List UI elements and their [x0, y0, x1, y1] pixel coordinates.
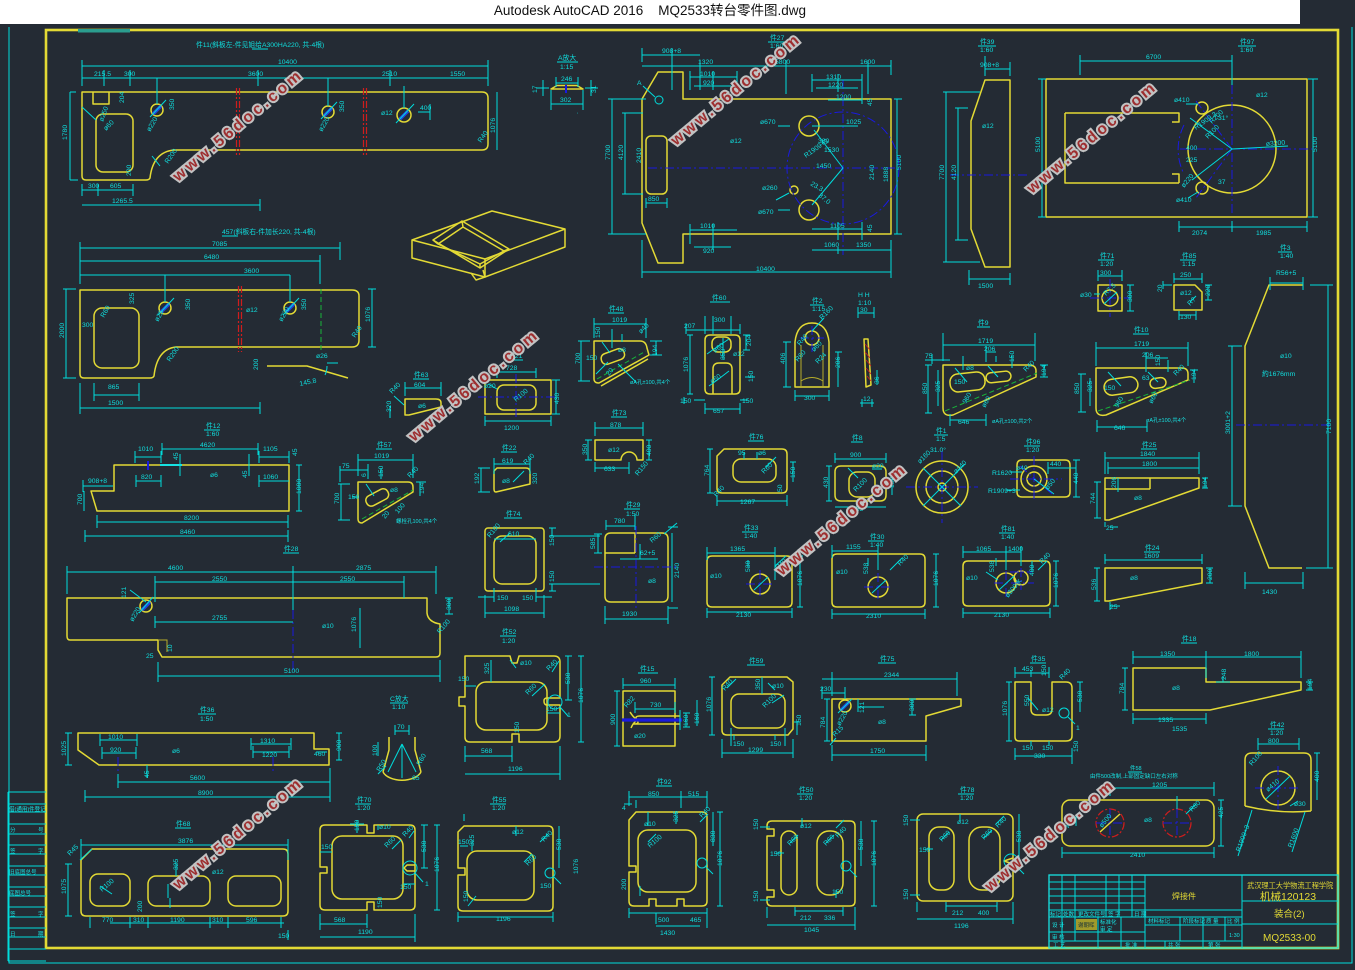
- svg-text:150: 150: [378, 465, 385, 477]
- svg-text:900: 900: [610, 713, 617, 725]
- svg-text:20: 20: [381, 510, 391, 520]
- svg-text:160: 160: [694, 712, 701, 724]
- svg-text:150: 150: [748, 370, 755, 382]
- svg-text:400: 400: [420, 105, 432, 112]
- svg-text:件42: 件42: [1270, 720, 1285, 729]
- svg-text:585: 585: [590, 537, 597, 549]
- svg-text:95: 95: [738, 450, 746, 457]
- svg-text:件33: 件33: [744, 523, 759, 532]
- svg-text:150: 150: [540, 883, 552, 890]
- svg-text:5100: 5100: [284, 668, 299, 675]
- svg-text:300: 300: [1127, 290, 1134, 302]
- svg-text:件8: 件8: [852, 433, 863, 442]
- svg-text:件71: 件71: [1100, 251, 1115, 260]
- svg-text:1:30: 1:30: [1229, 933, 1240, 939]
- svg-text:件75: 件75: [880, 654, 895, 663]
- svg-text:2140: 2140: [674, 563, 681, 578]
- svg-text:日 期: 日 期: [1134, 911, 1147, 918]
- svg-text:45: 45: [144, 770, 151, 778]
- svg-text:75: 75: [925, 353, 933, 360]
- svg-text:45: 45: [867, 224, 874, 232]
- svg-text:646: 646: [1114, 425, 1126, 432]
- svg-text:400: 400: [1186, 145, 1198, 152]
- svg-text:406: 406: [780, 352, 787, 364]
- svg-text:130: 130: [1180, 314, 1192, 321]
- svg-text:ø10: ø10: [644, 821, 656, 828]
- svg-text:R60: R60: [760, 461, 774, 475]
- svg-text:460: 460: [314, 751, 326, 758]
- svg-text:430: 430: [554, 392, 561, 404]
- svg-text:1196: 1196: [954, 923, 969, 930]
- svg-text:150: 150: [753, 818, 760, 830]
- svg-text:850: 850: [1074, 382, 1081, 394]
- svg-text:件29: 件29: [626, 500, 641, 509]
- svg-text:件12: 件12: [206, 421, 221, 430]
- svg-text:206: 206: [1111, 476, 1118, 488]
- svg-text:ø12: ø12: [800, 823, 812, 830]
- svg-text:R?: R?: [1186, 296, 1197, 307]
- svg-text:610: 610: [508, 531, 520, 538]
- svg-text:6: 6: [361, 473, 368, 477]
- svg-text:194: 194: [1041, 364, 1048, 376]
- svg-text:150: 150: [790, 466, 797, 478]
- svg-text:1888: 1888: [883, 167, 890, 182]
- svg-text:谢朝晖: 谢朝晖: [1078, 921, 1095, 929]
- svg-text:1200: 1200: [504, 425, 519, 432]
- svg-text:604: 604: [414, 382, 426, 389]
- svg-text:ø220: ø220: [1180, 173, 1195, 190]
- svg-text:230: 230: [820, 686, 832, 693]
- svg-text:1500: 1500: [978, 283, 993, 290]
- svg-text:R40: R40: [388, 381, 402, 395]
- svg-text:ø12: ø12: [957, 819, 969, 826]
- svg-text:65: 65: [412, 775, 420, 782]
- svg-text:192: 192: [474, 472, 481, 484]
- svg-text:件11(斜板左-件见姐给A300HA220, 共-4根): 件11(斜板左-件见姐给A300HA220, 共-4根): [196, 40, 324, 49]
- svg-text:2130: 2130: [736, 612, 751, 619]
- svg-text:武汉理工大学物流工程学院: 武汉理工大学物流工程学院: [1247, 881, 1333, 890]
- svg-text:件78: 件78: [960, 785, 975, 794]
- svg-text:件10: 件10: [1134, 325, 1149, 334]
- svg-text:www.56doc.com: www.56doc.com: [981, 776, 1119, 896]
- svg-text:150: 150: [1104, 385, 1116, 392]
- svg-text:300: 300: [124, 71, 136, 78]
- svg-text:212: 212: [800, 915, 812, 922]
- svg-text:150: 150: [919, 847, 931, 854]
- svg-text:字: 字: [38, 910, 44, 918]
- svg-text:1265.5: 1265.5: [112, 198, 133, 205]
- svg-text:A: A: [637, 80, 642, 87]
- svg-text:øA孔±100,共4个: øA孔±100,共4个: [1146, 416, 1187, 424]
- svg-text:件1: 件1: [936, 426, 947, 435]
- svg-text:C放大: C放大: [390, 694, 409, 703]
- svg-text:700: 700: [77, 493, 84, 505]
- svg-text:1196: 1196: [496, 916, 511, 923]
- svg-text:7700: 7700: [605, 145, 612, 160]
- svg-text:1985: 1985: [1256, 230, 1271, 237]
- svg-text:1609: 1609: [1144, 553, 1159, 560]
- svg-text:300: 300: [446, 598, 453, 610]
- svg-text:325: 325: [673, 810, 680, 822]
- svg-text:MQ2533-00: MQ2533-00: [1263, 933, 1316, 944]
- svg-text:螺栓孔100,共4个: 螺栓孔100,共4个: [396, 517, 438, 525]
- svg-text:ø6: ø6: [172, 748, 180, 755]
- svg-text:538: 538: [858, 838, 865, 850]
- svg-text:17: 17: [532, 85, 539, 93]
- svg-text:ø26: ø26: [316, 353, 328, 360]
- svg-text:件52: 件52: [502, 627, 517, 636]
- svg-text:4120: 4120: [618, 145, 625, 160]
- svg-text:200: 200: [253, 358, 260, 370]
- svg-text:1:15: 1:15: [1182, 261, 1195, 268]
- svg-text:310: 310: [133, 917, 145, 924]
- svg-text:204: 204: [119, 91, 126, 103]
- svg-text:784: 784: [1119, 682, 1126, 694]
- svg-text:共 张: 共 张: [1168, 941, 1181, 949]
- svg-text:1719: 1719: [1134, 341, 1149, 348]
- svg-text:ø220: ø220: [836, 710, 850, 727]
- svg-text:6700: 6700: [1146, 54, 1161, 61]
- svg-text:325: 325: [173, 858, 180, 870]
- svg-text:1045: 1045: [804, 927, 819, 934]
- svg-text:25: 25: [1110, 604, 1118, 611]
- svg-text:R60: R60: [416, 753, 428, 767]
- svg-text:设 计: 设 计: [1052, 921, 1065, 929]
- svg-text:ø8: ø8: [648, 578, 656, 585]
- svg-text:1: 1: [567, 712, 571, 719]
- svg-text:ø10: ø10: [322, 623, 334, 630]
- svg-text:R1909+3: R1909+3: [1235, 824, 1251, 853]
- svg-text:R150: R150: [634, 460, 650, 477]
- svg-text:øA孔±100,共2个: øA孔±100,共2个: [992, 417, 1033, 425]
- svg-text:焊接件: 焊接件: [1172, 891, 1196, 901]
- svg-text:工 艺: 工 艺: [1053, 942, 1066, 949]
- svg-text:30: 30: [860, 307, 868, 314]
- svg-text:310: 310: [212, 917, 224, 924]
- svg-text:605: 605: [110, 183, 122, 190]
- svg-text:ø30: ø30: [1080, 292, 1092, 299]
- svg-text:ø12: ø12: [608, 447, 620, 454]
- svg-text:件2: 件2: [812, 296, 823, 305]
- svg-text:8200: 8200: [184, 515, 199, 522]
- svg-text:ø12: ø12: [212, 869, 224, 876]
- svg-text:1200: 1200: [836, 94, 851, 101]
- svg-text:1: 1: [1076, 725, 1080, 732]
- svg-text:R1909+3: R1909+3: [988, 488, 1016, 495]
- svg-text:150: 150: [549, 570, 556, 582]
- svg-text:3001+2: 3001+2: [1225, 411, 1232, 434]
- svg-text:件3: 件3: [1280, 243, 1291, 252]
- svg-text:150: 150: [753, 890, 760, 902]
- svg-text:件57: 件57: [377, 440, 392, 449]
- svg-text:R56+5: R56+5: [1276, 270, 1296, 277]
- svg-text:1:40: 1:40: [744, 533, 757, 540]
- svg-text:件70: 件70: [357, 795, 372, 804]
- svg-text:R45: R45: [66, 843, 80, 857]
- svg-text:件30: 件30: [870, 532, 885, 541]
- svg-text:R200: R200: [166, 346, 181, 364]
- svg-text:1:20: 1:20: [1270, 730, 1283, 737]
- svg-text:865: 865: [108, 384, 120, 391]
- svg-text:568: 568: [481, 748, 493, 755]
- svg-text:件59: 件59: [749, 656, 764, 665]
- svg-text:1076: 1076: [573, 859, 580, 874]
- svg-text:325: 325: [469, 834, 476, 846]
- svg-text:ø10: ø10: [520, 660, 532, 667]
- svg-text:3600: 3600: [248, 71, 263, 78]
- svg-text:ø410: ø410: [1265, 778, 1282, 793]
- svg-text:处数: 处数: [1063, 910, 1075, 918]
- svg-text:件73: 件73: [612, 408, 627, 417]
- svg-text:1075: 1075: [61, 879, 68, 894]
- svg-text:R80: R80: [1188, 799, 1202, 813]
- svg-text:440: 440: [1073, 472, 1080, 484]
- svg-text:150: 150: [497, 595, 509, 602]
- svg-text:784: 784: [820, 716, 827, 728]
- svg-text:300: 300: [714, 317, 726, 324]
- svg-text:457(斜板右-件加长220, 共-4根): 457(斜板右-件加长220, 共-4根): [222, 227, 316, 236]
- svg-text:1076: 1076: [871, 851, 878, 866]
- svg-text:4: 4: [622, 805, 626, 812]
- svg-text:www.56doc.com: www.56doc.com: [1023, 78, 1161, 198]
- svg-text:550: 550: [1024, 694, 1031, 706]
- svg-text:更改文件号: 更改文件号: [1078, 910, 1106, 918]
- svg-text:1155: 1155: [846, 544, 861, 551]
- svg-text:20: 20: [605, 367, 615, 377]
- svg-text:1220: 1220: [262, 752, 277, 759]
- svg-text:36: 36: [874, 376, 881, 384]
- svg-text:1080: 1080: [296, 479, 303, 494]
- svg-text:250: 250: [1180, 272, 1192, 279]
- svg-text:ø60: ø60: [709, 373, 723, 386]
- svg-text:206: 206: [984, 346, 996, 353]
- svg-text:150: 150: [1009, 350, 1016, 362]
- svg-text:150: 150: [832, 889, 844, 896]
- svg-text:比 例: 比 例: [1227, 917, 1240, 925]
- svg-text:R100: R100: [513, 388, 530, 404]
- svg-text:700: 700: [575, 352, 582, 364]
- svg-text:1076: 1076: [1053, 573, 1060, 588]
- svg-text:ø8: ø8: [1130, 575, 1138, 582]
- svg-text:1310: 1310: [826, 74, 841, 81]
- svg-text:31: 31: [591, 85, 598, 93]
- svg-text:阶段标记: 阶段标记: [1183, 917, 1206, 925]
- svg-text:ø30: ø30: [1294, 801, 1306, 808]
- svg-text:2410: 2410: [1130, 852, 1145, 859]
- svg-text:A放大: A放大: [558, 53, 576, 62]
- svg-text:1350: 1350: [1160, 651, 1175, 658]
- svg-text:R60: R60: [794, 349, 808, 363]
- svg-text:425: 425: [1218, 806, 1225, 818]
- svg-text:1076: 1076: [490, 118, 497, 133]
- svg-text:194: 194: [1202, 476, 1209, 488]
- svg-text:审 核: 审 核: [1052, 933, 1065, 941]
- svg-text:150: 150: [770, 851, 782, 858]
- svg-text:350: 350: [301, 298, 308, 310]
- svg-text:150: 150: [549, 534, 556, 546]
- svg-text:1:60: 1:60: [1240, 47, 1253, 54]
- svg-text:2755: 2755: [212, 615, 227, 622]
- svg-text:568: 568: [334, 917, 346, 924]
- svg-text:538: 538: [745, 560, 752, 572]
- svg-text:960: 960: [640, 678, 652, 685]
- svg-text:1:10: 1:10: [392, 704, 405, 711]
- svg-text:380: 380: [818, 138, 830, 145]
- svg-text:2074: 2074: [1192, 230, 1207, 237]
- svg-text:件74: 件74: [506, 509, 521, 518]
- svg-text:150: 150: [514, 721, 521, 733]
- svg-text:320: 320: [532, 472, 539, 484]
- svg-text:160: 160: [683, 714, 690, 726]
- svg-text:150: 150: [321, 844, 333, 851]
- svg-text:194: 194: [419, 482, 426, 494]
- svg-text:2130: 2130: [994, 612, 1009, 619]
- svg-text:619: 619: [502, 458, 514, 465]
- svg-text:审 定: 审 定: [1100, 925, 1113, 933]
- svg-text:ø10: ø10: [836, 569, 848, 576]
- svg-text:1320: 1320: [698, 59, 713, 66]
- svg-text:440: 440: [1050, 461, 1062, 468]
- svg-text:2310: 2310: [866, 613, 881, 620]
- svg-text:100: 100: [394, 502, 407, 515]
- svg-text:件76: 件76: [749, 432, 764, 441]
- svg-text:1076: 1076: [717, 851, 724, 866]
- svg-text:1550: 1550: [450, 71, 465, 78]
- svg-text:1267: 1267: [740, 499, 755, 506]
- svg-text:75: 75: [342, 463, 350, 470]
- svg-text:325: 325: [1087, 380, 1094, 392]
- svg-text:ø8: ø8: [1144, 817, 1152, 824]
- svg-text:920: 920: [703, 80, 715, 87]
- svg-text:1400: 1400: [1008, 546, 1023, 553]
- svg-text:标记: 标记: [1050, 910, 1062, 918]
- svg-text:ø12: ø12: [512, 829, 524, 836]
- svg-text:646: 646: [958, 419, 970, 426]
- svg-text:1196: 1196: [508, 766, 523, 773]
- svg-text:1:60: 1:60: [206, 431, 219, 438]
- svg-text:质 量: 质 量: [1206, 917, 1219, 925]
- svg-text:R1600: R1600: [1287, 827, 1301, 848]
- svg-text:150: 150: [1155, 354, 1162, 366]
- svg-text:4120: 4120: [951, 165, 958, 180]
- svg-text:ø12: ø12: [733, 351, 745, 358]
- svg-text:ø12: ø12: [1042, 707, 1054, 714]
- svg-text:150: 150: [903, 888, 910, 900]
- svg-text:350: 350: [755, 678, 762, 690]
- svg-text:R40: R40: [545, 658, 559, 672]
- svg-text:121: 121: [859, 701, 866, 713]
- svg-text:150: 150: [1041, 664, 1048, 676]
- svg-text:ø8: ø8: [1134, 495, 1142, 502]
- svg-text:件28: 件28: [284, 544, 299, 553]
- svg-text:ø10: ø10: [710, 573, 722, 580]
- svg-text:ø20: ø20: [872, 463, 884, 470]
- svg-text:R40: R40: [796, 333, 810, 347]
- svg-text:ø260: ø260: [762, 185, 778, 192]
- svg-text:R100: R100: [647, 834, 664, 850]
- svg-text:1076: 1076: [351, 617, 358, 632]
- svg-text:325: 325: [484, 662, 491, 674]
- svg-text:194: 194: [1307, 678, 1314, 690]
- svg-text:1299: 1299: [748, 747, 763, 754]
- svg-text:1:10: 1:10: [858, 300, 871, 307]
- svg-text:744: 744: [1090, 492, 1097, 504]
- svg-text:7100: 7100: [1326, 419, 1333, 434]
- svg-text:538: 538: [1077, 690, 1084, 702]
- svg-text:件25: 件25: [1142, 440, 1157, 449]
- svg-text:1076: 1076: [578, 688, 585, 703]
- svg-text:150: 150: [1022, 745, 1034, 752]
- svg-text:246: 246: [561, 76, 573, 83]
- svg-text:150: 150: [1042, 745, 1054, 752]
- svg-text:908+8: 908+8: [662, 48, 681, 55]
- svg-text:150: 150: [400, 884, 412, 891]
- svg-text:1535: 1535: [1172, 726, 1187, 733]
- svg-text:1450: 1450: [816, 163, 831, 170]
- svg-text:7700: 7700: [939, 165, 946, 180]
- svg-text:2550: 2550: [340, 576, 355, 583]
- svg-text:2000: 2000: [59, 323, 66, 338]
- svg-text:3600: 3600: [244, 268, 259, 275]
- svg-text:908+8: 908+8: [980, 62, 999, 69]
- svg-text:R40: R40: [994, 815, 1008, 829]
- svg-text:件96: 件96: [1026, 437, 1041, 446]
- svg-text:ø220: ø220: [129, 606, 143, 623]
- svg-text:50: 50: [777, 484, 784, 492]
- svg-text:1335: 1335: [1158, 717, 1173, 724]
- svg-text:465: 465: [690, 917, 702, 924]
- svg-text:øA孔±100,共4个: øA孔±100,共4个: [630, 378, 671, 386]
- svg-text:旧底图总号: 旧底图总号: [9, 868, 37, 876]
- svg-text:批 准: 批 准: [1125, 941, 1138, 949]
- svg-text:ø6: ø6: [210, 472, 218, 479]
- svg-text:1:20: 1:20: [1026, 447, 1039, 454]
- svg-text:850: 850: [648, 196, 660, 203]
- svg-text:R100: R100: [436, 618, 452, 635]
- svg-text:R40: R40: [698, 805, 712, 819]
- svg-text:1:40: 1:40: [1001, 534, 1014, 541]
- svg-text:ø8: ø8: [618, 347, 626, 354]
- svg-text:1076: 1076: [797, 571, 804, 586]
- svg-text:300: 300: [804, 395, 816, 402]
- svg-text:400: 400: [646, 444, 653, 456]
- svg-text:1076: 1076: [706, 697, 713, 712]
- svg-text:ø12: ø12: [381, 110, 393, 117]
- svg-text:ø220: ø220: [318, 116, 332, 133]
- svg-text:300: 300: [82, 322, 94, 329]
- svg-text:借(通用)件登记: 借(通用)件登记: [9, 805, 46, 813]
- svg-text:730: 730: [650, 702, 662, 709]
- svg-text:件15: 件15: [640, 664, 655, 673]
- svg-text:R15: R15: [831, 724, 845, 738]
- svg-text:ø12: ø12: [1180, 290, 1192, 297]
- svg-text:538: 538: [556, 838, 563, 850]
- svg-text:908+8: 908+8: [88, 478, 107, 485]
- svg-text:31.0°: 31.0°: [930, 446, 946, 454]
- svg-text:1105: 1105: [830, 223, 845, 230]
- svg-text:300: 300: [1100, 270, 1112, 277]
- svg-text:350: 350: [720, 348, 727, 360]
- svg-text:1500: 1500: [108, 400, 123, 407]
- svg-text:1:20: 1:20: [492, 805, 505, 812]
- svg-text:件22: 件22: [502, 443, 517, 452]
- svg-text:1:40: 1:40: [870, 542, 883, 549]
- svg-text:ø3200: ø3200: [1266, 140, 1286, 148]
- svg-text:ø670: ø670: [758, 209, 774, 216]
- svg-text:286: 286: [835, 356, 842, 368]
- svg-text:62+5: 62+5: [640, 550, 656, 557]
- svg-text:ø8: ø8: [502, 478, 510, 485]
